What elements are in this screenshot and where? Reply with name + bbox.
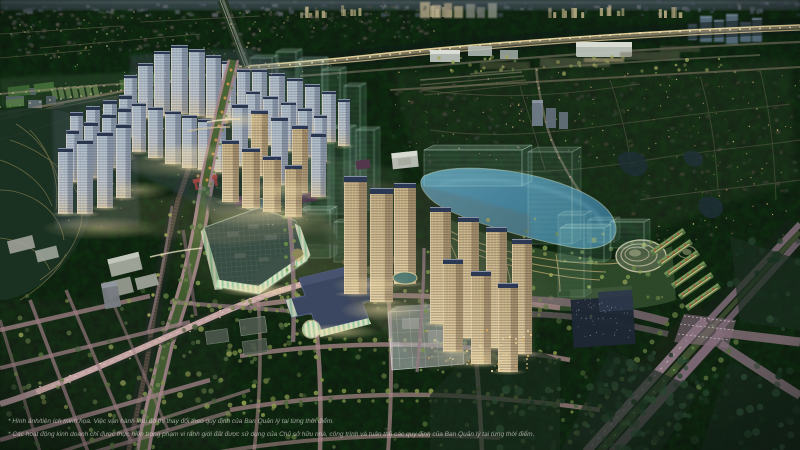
svg-text:* Hình ảnh/tiện ích minh họa.: * Hình ảnh/tiện ích minh họa. Việc vận h… — [8, 417, 334, 425]
svg-text:* Các hoạt động kinh doanh chỉ: * Các hoạt động kinh doanh chỉ được thực… — [8, 430, 535, 438]
